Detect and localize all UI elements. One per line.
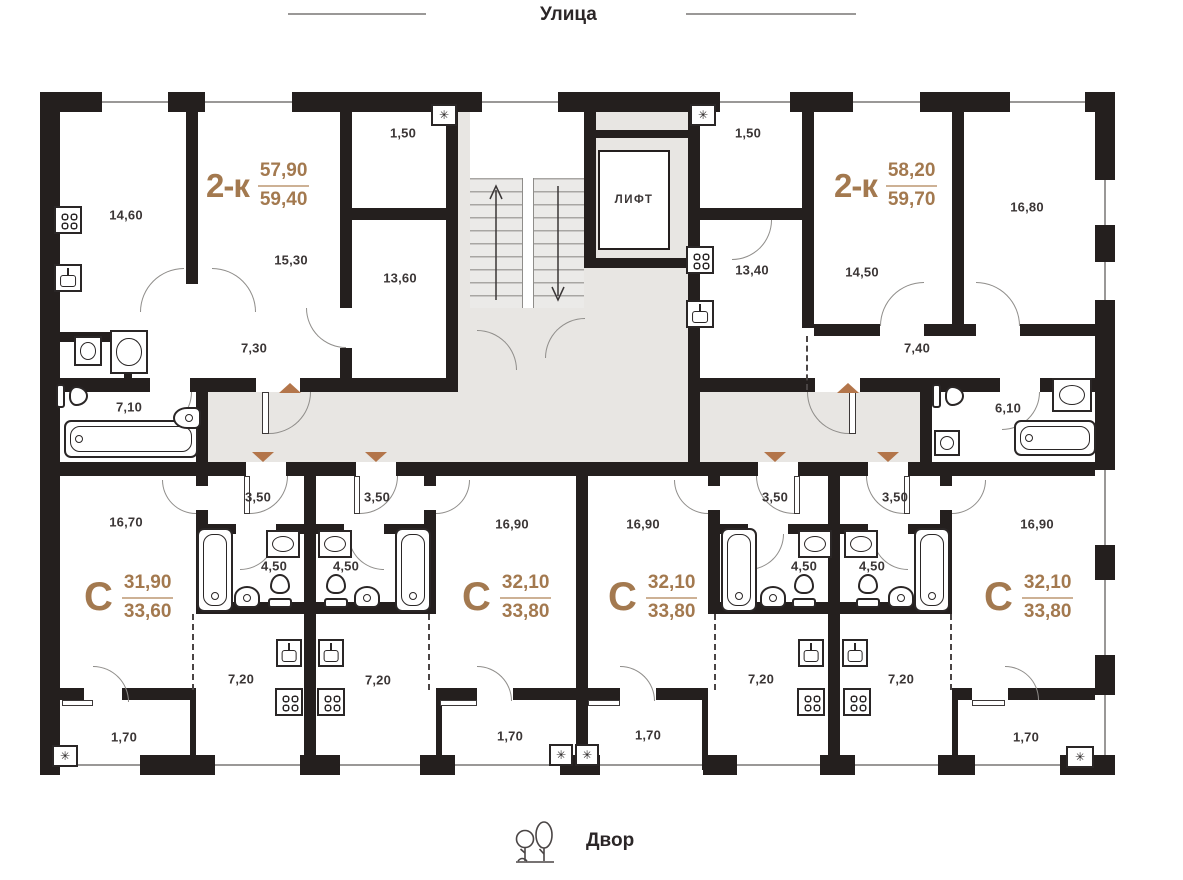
wall	[1095, 225, 1115, 262]
dim-studio1-bath: 4,50	[261, 559, 287, 574]
dim-studio1-room: 16,70	[109, 515, 143, 530]
unit-area-fraction: 32,10 33,80	[500, 572, 552, 624]
unit-type: 2-к	[834, 167, 877, 205]
vent-icon: ✳	[431, 104, 457, 126]
wall	[352, 208, 458, 220]
wall	[920, 92, 1010, 112]
vent-icon: ✳	[690, 104, 716, 126]
window	[720, 92, 790, 112]
bathtub-icon	[1014, 420, 1096, 456]
stairs-direction-arrows	[470, 178, 584, 308]
window	[215, 755, 300, 775]
dim-studio1-hall: 3,50	[245, 490, 271, 505]
wall	[798, 462, 868, 476]
street-divider-line	[686, 13, 856, 15]
zone-boundary-dashed	[428, 614, 430, 690]
washbasin-oval-icon	[798, 530, 832, 558]
unit-label-studio1: С 31,90 33,60	[84, 572, 173, 624]
unit-area-lower: 33,80	[500, 599, 552, 624]
door-swing-arc	[162, 480, 196, 514]
street-divider-line	[288, 13, 426, 15]
unit-area-fraction: 58,20 59,70	[886, 160, 938, 212]
wall	[952, 700, 958, 770]
door-swing-arc	[732, 220, 772, 260]
dim-right2k-loggia: 1,50	[735, 126, 761, 141]
window	[1010, 92, 1085, 112]
washbasin-oval-icon	[844, 530, 878, 558]
stove-icon	[275, 688, 303, 716]
unit-area-lower: 33,60	[122, 599, 174, 624]
bathtub-icon	[395, 528, 431, 612]
door-swing-arc	[880, 282, 924, 326]
wall	[700, 208, 802, 220]
unit-area-lower: 59,40	[258, 187, 310, 212]
wall	[60, 462, 246, 476]
washbasin-icon	[760, 586, 786, 608]
wall	[820, 755, 855, 775]
unit-label-studio4: С 32,10 33,80	[984, 572, 1073, 624]
dim-studio3-bath: 4,50	[791, 559, 817, 574]
stove-icon	[317, 688, 345, 716]
trees-icon	[512, 816, 558, 866]
dim-studio4-balcony: 1,70	[1013, 730, 1039, 745]
toilet-icon	[268, 574, 292, 608]
window	[1095, 580, 1115, 655]
wall	[702, 700, 708, 770]
entrance-arrow-down	[252, 452, 274, 462]
unit-area-fraction: 31,90 33,60	[122, 572, 174, 624]
wall	[140, 755, 215, 775]
unit-type: 2-к	[206, 167, 249, 205]
dim-left2k-bath: 7,10	[116, 400, 142, 415]
zone-boundary-dashed	[950, 614, 952, 690]
vent-icon: ✳	[52, 745, 78, 767]
dim-studio2-kitchen: 7,20	[365, 673, 391, 688]
wall	[700, 378, 815, 392]
bathtub-icon	[721, 528, 757, 612]
dim-studio1-balcony: 1,70	[111, 730, 137, 745]
door-leaf	[794, 476, 800, 514]
unit-area-fraction: 32,10 33,80	[646, 572, 698, 624]
wall	[1095, 545, 1115, 580]
zone-boundary-dashed	[714, 614, 716, 690]
wall	[584, 130, 700, 138]
wall	[436, 688, 477, 700]
wall	[304, 476, 316, 755]
toilet-icon	[324, 574, 348, 608]
dim-studio3-kitchen: 7,20	[748, 672, 774, 687]
vent-icon: ✳	[575, 744, 599, 766]
wall	[656, 688, 708, 700]
kitchen-sink-icon	[798, 639, 824, 667]
unit-type: С	[984, 575, 1013, 620]
washbasin-oval-icon	[1052, 378, 1092, 412]
wall	[952, 112, 964, 330]
wall	[186, 112, 198, 284]
dim-studio2-balcony: 1,70	[497, 729, 523, 744]
wall	[1095, 755, 1115, 775]
dim-studio2-bath: 4,50	[333, 559, 359, 574]
kitchen-sink-icon	[842, 639, 868, 667]
unit-area-upper: 58,20	[886, 160, 938, 187]
wall	[190, 378, 256, 392]
elevator: ЛИФТ	[598, 150, 670, 250]
dim-left2k-hall: 7,30	[241, 341, 267, 356]
elevator-label: ЛИФТ	[615, 194, 654, 206]
window	[600, 755, 703, 775]
wall	[168, 92, 205, 112]
window	[1095, 180, 1115, 225]
unit-area-lower: 59,70	[886, 187, 938, 212]
toilet-icon	[56, 384, 88, 408]
door-leaf	[972, 700, 1005, 706]
washing-machine-icon	[74, 336, 102, 366]
wall	[40, 92, 60, 755]
dim-left2k-kitchen: 14,60	[109, 208, 143, 223]
wall	[286, 462, 356, 476]
window	[455, 755, 560, 775]
unit-label-studio3: С 32,10 33,80	[608, 572, 697, 624]
wall	[446, 112, 458, 392]
door-swing-arc	[306, 308, 346, 348]
unit-area-lower: 33,80	[1022, 599, 1074, 624]
window	[482, 92, 558, 112]
wall	[814, 324, 880, 336]
stove-icon	[54, 206, 82, 234]
wall	[340, 112, 352, 308]
toilet-icon	[856, 574, 880, 608]
door-swing-arc	[1005, 666, 1039, 700]
kitchen-sink-icon	[318, 639, 344, 667]
door-leaf	[588, 700, 620, 706]
kitchen-sink-icon	[54, 264, 82, 292]
wall	[703, 755, 737, 775]
washbasin-icon	[888, 586, 914, 608]
unit-label-right2k: 2-к 58,20 59,70	[834, 160, 937, 212]
washbasin-icon	[234, 586, 260, 608]
wall	[300, 378, 458, 392]
wall	[1020, 324, 1095, 336]
wall	[436, 700, 442, 770]
dim-right2k-room: 16,80	[1010, 200, 1044, 215]
unit-area-upper: 31,90	[122, 572, 174, 599]
wall	[122, 688, 196, 700]
dim-studio4-kitchen: 7,20	[888, 672, 914, 687]
zone-boundary-dashed	[192, 614, 194, 690]
wall	[940, 476, 952, 486]
door-swing-arc	[93, 666, 129, 702]
washbasin-icon	[173, 407, 201, 429]
wall	[790, 92, 853, 112]
vent-icon: ✳	[549, 744, 573, 766]
door-swing-arc	[976, 282, 1020, 326]
unit-area-upper: 57,90	[258, 160, 310, 187]
dim-right2k-kitchen: 13,40	[735, 263, 769, 278]
entrance-arrow-down	[365, 452, 387, 462]
wall	[924, 324, 964, 336]
wall	[708, 476, 720, 486]
door-leaf	[262, 392, 269, 434]
door-swing-arc	[212, 268, 256, 312]
washbasin-icon	[354, 586, 380, 608]
door-swing-arc	[952, 480, 986, 514]
unit-area-upper: 32,10	[646, 572, 698, 599]
stove-icon	[797, 688, 825, 716]
dim-studio4-room: 16,90	[1020, 517, 1054, 532]
bathtub-icon	[197, 528, 233, 612]
unit-area-upper: 32,10	[1022, 572, 1074, 599]
window	[853, 92, 920, 112]
unit-area-fraction: 32,10 33,80	[1022, 572, 1074, 624]
window	[1095, 262, 1115, 300]
courtyard-legend: Двор	[512, 816, 634, 866]
wall	[300, 755, 340, 775]
kitchen-sink-icon	[276, 639, 302, 667]
unit-label-studio2: С 32,10 33,80	[462, 572, 551, 624]
toilet-icon	[792, 574, 816, 608]
entrance-arrow-up	[837, 383, 859, 393]
dim-studio4-hall: 3,50	[882, 490, 908, 505]
unit-type: С	[608, 575, 637, 620]
dim-studio1-kitchen: 7,20	[228, 672, 254, 687]
courtyard-label: Двор	[586, 830, 634, 852]
washing-machine-icon	[934, 430, 960, 456]
washbasin-oval-icon	[110, 330, 148, 374]
stair-landing	[470, 112, 584, 178]
wall	[190, 700, 196, 755]
dim-studio2-room: 16,90	[495, 517, 529, 532]
unit-type: С	[84, 575, 113, 620]
window	[1095, 470, 1115, 545]
floor-plan: Улица ЛИФТ	[0, 0, 1183, 880]
wall	[802, 112, 814, 328]
door-swing-arc	[477, 666, 512, 701]
window	[737, 755, 820, 775]
unit-area-lower: 33,80	[646, 599, 698, 624]
wall	[952, 688, 972, 700]
wall	[1095, 655, 1115, 695]
unit-type: С	[462, 575, 491, 620]
dim-left2k-loggia: 1,50	[390, 126, 416, 141]
dim-studio3-room: 16,90	[626, 517, 660, 532]
wall	[688, 112, 700, 476]
stove-icon	[686, 246, 714, 274]
wall	[584, 258, 700, 268]
stove-icon	[843, 688, 871, 716]
kitchen-sink-icon	[686, 300, 714, 328]
washbasin-oval-icon	[318, 530, 352, 558]
window	[975, 755, 1060, 775]
wall	[964, 324, 976, 336]
dim-left2k-room: 13,60	[383, 271, 417, 286]
entrance-arrow-down	[877, 452, 899, 462]
unit-area-upper: 32,10	[500, 572, 552, 599]
toilet-icon	[932, 384, 964, 408]
dim-right2k-bath: 6,10	[995, 401, 1021, 416]
street-label: Улица	[540, 4, 597, 26]
window	[855, 755, 938, 775]
door-swing-arc	[620, 666, 655, 701]
wall	[396, 462, 758, 476]
wall	[40, 688, 84, 700]
door-swing-arc	[140, 268, 184, 312]
entrance-arrow-up	[279, 383, 301, 393]
door-leaf	[62, 700, 93, 706]
dim-left2k-living: 15,30	[274, 253, 308, 268]
wall	[424, 476, 436, 486]
window	[102, 92, 168, 112]
wall	[513, 688, 576, 700]
door-leaf	[440, 700, 477, 706]
dim-studio3-balcony: 1,70	[635, 728, 661, 743]
dim-studio3-hall: 3,50	[762, 490, 788, 505]
bathtub-icon	[914, 528, 950, 612]
wall	[576, 476, 588, 775]
wall	[1095, 92, 1115, 180]
wall	[908, 462, 1095, 476]
door-leaf	[849, 392, 856, 434]
vent-icon: ✳	[1066, 746, 1094, 768]
unit-area-fraction: 57,90 59,40	[258, 160, 310, 212]
washbasin-oval-icon	[266, 530, 300, 558]
wall	[860, 378, 920, 392]
door-swing-arc	[674, 480, 708, 514]
window	[205, 92, 292, 112]
wall	[196, 476, 208, 486]
unit-label-left2k: 2-к 57,90 59,40	[206, 160, 309, 212]
dim-studio2-hall: 3,50	[364, 490, 390, 505]
zone-boundary-dashed	[806, 336, 808, 390]
wall	[1095, 300, 1115, 470]
window	[340, 755, 420, 775]
dim-right2k-living: 14,50	[845, 265, 879, 280]
dim-right2k-hall: 7,40	[904, 341, 930, 356]
wall	[828, 476, 840, 755]
window	[1095, 695, 1115, 755]
door-swing-arc	[436, 480, 470, 514]
wall	[588, 688, 620, 700]
entrance-arrow-down	[764, 452, 786, 462]
dim-studio4-bath: 4,50	[859, 559, 885, 574]
